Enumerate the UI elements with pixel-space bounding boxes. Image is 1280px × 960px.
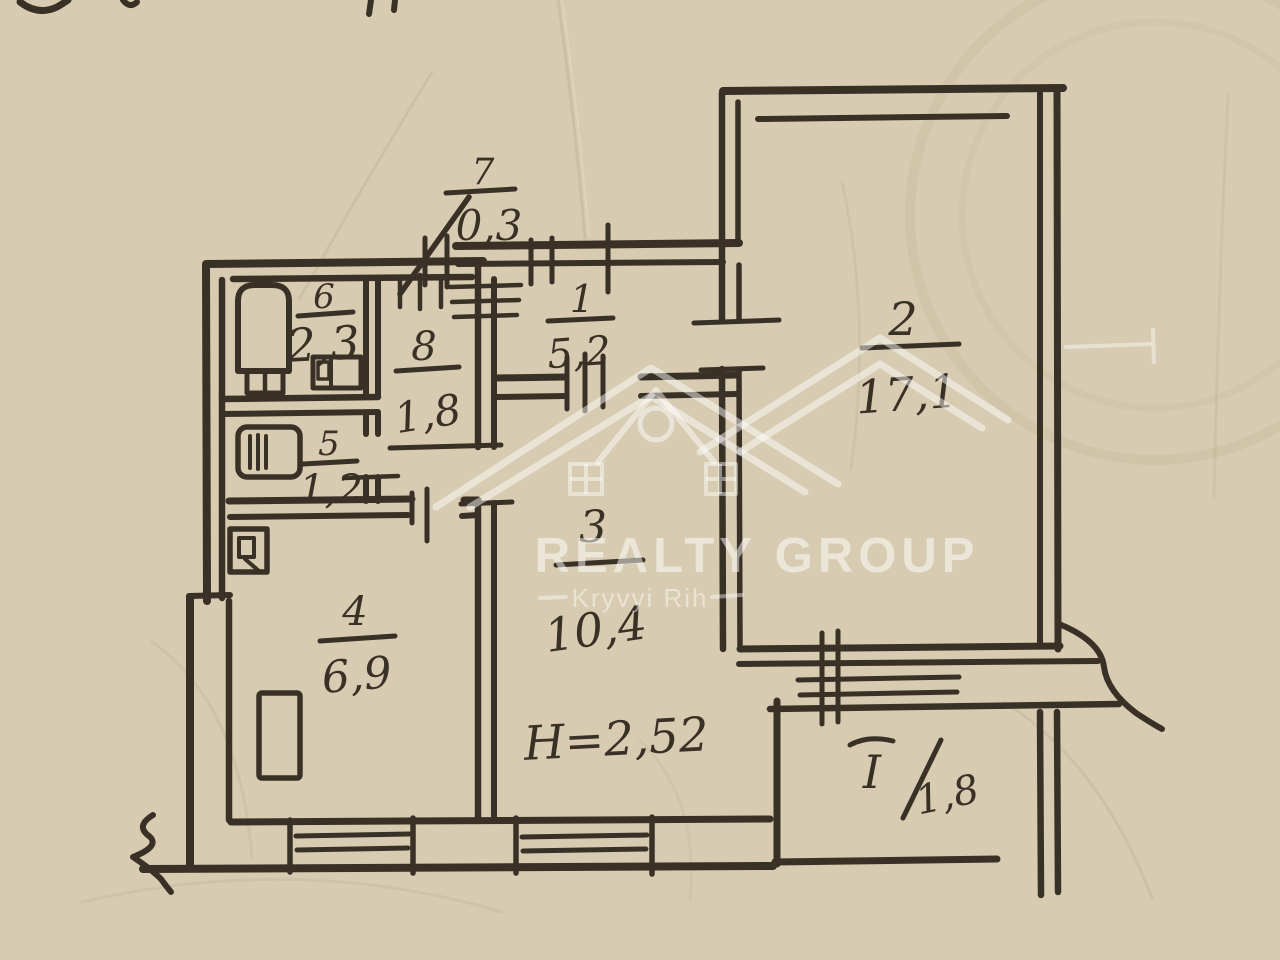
wall-segment [222, 397, 378, 399]
hatch-tick [450, 285, 521, 287]
window [296, 834, 409, 836]
wall-segment [458, 262, 723, 264]
room-labels: 1 5,2 2 17,1 3 10,4 4 6,9 5 1,2 6 2,3 7 … [284, 152, 983, 824]
ink-mark [20, 0, 68, 11]
door-tick [390, 445, 501, 448]
room-4-number-label: 4 [341, 589, 367, 635]
room-5-number-label: 5 [318, 424, 340, 464]
wall-segment [143, 866, 773, 869]
wall-segment [1057, 88, 1058, 649]
door-tick [694, 320, 779, 323]
room-5-area-label: 1,2 [299, 467, 363, 513]
window [522, 835, 647, 837]
balcony-wall [1057, 712, 1058, 892]
watermark-city: Kryvyi Rih [571, 583, 708, 613]
watermark-dash [1153, 330, 1154, 362]
window [523, 849, 646, 851]
hatch-tick [452, 300, 519, 302]
door-tick [461, 502, 512, 504]
wall-segment [739, 369, 740, 646]
room-7-area-label: 0,3 [456, 201, 523, 250]
watermark-window-icon [570, 464, 602, 494]
watermark-brand: REALTY GROUP [535, 529, 980, 583]
toilet-fixture [238, 427, 300, 477]
vent-shaft [239, 538, 254, 557]
room-6-area-label: 2,3 [284, 315, 361, 373]
ink-mark [394, 0, 395, 10]
vent-shaft [245, 559, 259, 571]
break-line [133, 815, 171, 892]
room-4-area-label: 6,9 [320, 647, 394, 704]
wall-segment [231, 819, 770, 822]
bathtub-fixture [238, 285, 289, 371]
balcony-wall [775, 859, 997, 862]
wall-segment [723, 88, 1063, 91]
ink-mark [369, 0, 371, 14]
wall-segment [230, 515, 408, 517]
window-inner-line [758, 116, 1007, 119]
wall-segment [462, 515, 478, 516]
door-tick [701, 368, 763, 370]
watermark-circle-window-icon [640, 408, 672, 440]
ceiling-height-label: H=2,52 [521, 707, 710, 772]
outer-walls [133, 88, 1162, 895]
watermark-dash [1066, 344, 1150, 347]
room-6-number-label: 6 [313, 277, 335, 317]
balcony-number-label: I [862, 745, 882, 799]
room-2-number-label: 2 [887, 292, 917, 346]
wall-segment [740, 646, 1060, 649]
watermark-dash [540, 597, 566, 598]
stray-ink-marks [20, 0, 395, 14]
floor-plan-drawing: 1 5,2 2 17,1 3 10,4 4 6,9 5 1,2 6 2,3 7 … [0, 0, 1280, 960]
room-7-number-label: 7 [472, 152, 495, 193]
room-8-number-label: 8 [411, 324, 436, 370]
room-8-area-label: 1,8 [391, 384, 465, 443]
room-1-area-label: 5,2 [546, 328, 613, 378]
wall-segment [641, 375, 737, 377]
ink-mark [123, 0, 137, 5]
wall-segment [496, 396, 566, 397]
window [297, 848, 408, 850]
hatch-tick [454, 315, 517, 317]
room-1-number-label: 1 [570, 277, 594, 321]
fraction-line [320, 636, 395, 641]
wall-segment [233, 277, 472, 279]
floor-plan-photo: 1 5,2 2 17,1 3 10,4 4 6,9 5 1,2 6 2,3 7 … [0, 0, 1280, 960]
balcony-wall [1040, 712, 1041, 895]
watermark-window-icon [706, 464, 736, 494]
wall-segment [739, 661, 1098, 664]
watermark-dash [712, 595, 742, 597]
vent-shaft [230, 529, 267, 572]
wall-segment [222, 412, 378, 414]
kitchen-fixture [259, 693, 300, 778]
balcony-door-window [800, 692, 957, 695]
balcony-door-window [798, 677, 959, 680]
wall-segment [189, 595, 230, 596]
wall-curve-mark [1059, 624, 1162, 729]
